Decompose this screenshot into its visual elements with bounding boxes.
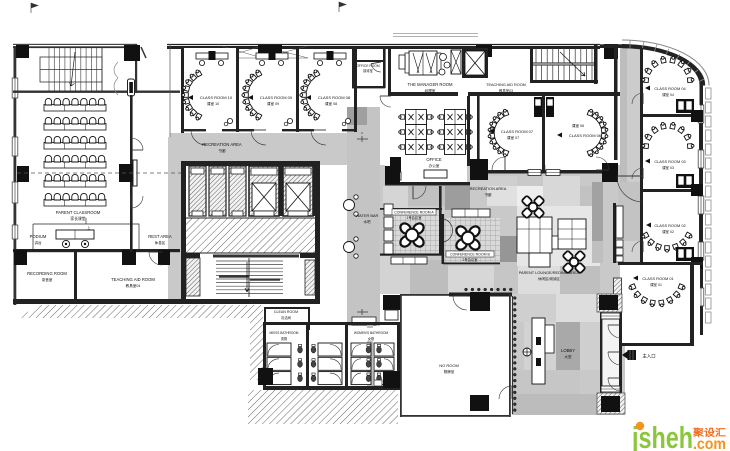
svg-text:课室 03: 课室 03	[662, 165, 674, 170]
svg-text:课室 08: 课室 08	[325, 101, 337, 106]
svg-text:清洁间: 清洁间	[281, 315, 291, 320]
svg-text:CLASS ROOM 02: CLASS ROOM 02	[654, 223, 685, 228]
svg-text:休息区: 休息区	[155, 240, 166, 245]
svg-text:1号会议室: 1号会议室	[406, 215, 422, 220]
svg-text:大堂: 大堂	[564, 354, 572, 359]
svg-text:女厕: 女厕	[368, 336, 374, 341]
svg-text:THE MANAGER ROOM: THE MANAGER ROOM	[408, 82, 453, 87]
svg-text:CLASS ROOM 07: CLASS ROOM 07	[501, 129, 534, 134]
svg-text:RECORDING ROOM: RECORDING ROOM	[27, 271, 67, 276]
svg-text:TEACHING AID ROOM: TEACHING AID ROOM	[111, 277, 155, 282]
svg-text:聚设汇: 聚设汇	[692, 427, 727, 439]
svg-text:PODIUM: PODIUM	[30, 234, 47, 239]
svg-text:CLASS ROOM 01: CLASS ROOM 01	[642, 276, 673, 281]
svg-text:WOMEN'S BATHROOM: WOMEN'S BATHROOM	[354, 331, 389, 335]
svg-text:课室 07: 课室 07	[507, 135, 519, 140]
svg-text:TEACHING AID ROOM: TEACHING AID ROOM	[486, 83, 526, 87]
svg-text:休闲区/阅读区: 休闲区/阅读区	[538, 276, 560, 281]
svg-text:教具室04: 教具室04	[126, 283, 141, 288]
svg-text:CLASS ROOM 09: CLASS ROOM 09	[260, 95, 293, 100]
svg-text:课室 10: 课室 10	[207, 101, 219, 106]
svg-text:书廊: 书廊	[218, 148, 226, 153]
svg-text:书廊: 书廊	[485, 192, 493, 197]
svg-text:LOBBY: LOBBY	[561, 348, 575, 353]
svg-text:录音室: 录音室	[42, 277, 53, 282]
svg-text:CONFERENCE ROOM A: CONFERENCE ROOM A	[394, 211, 434, 215]
svg-text:办公室: 办公室	[429, 163, 440, 168]
svg-text:课室 04: 课室 04	[662, 92, 674, 97]
svg-text:CLASS ROOM 08: CLASS ROOM 08	[318, 95, 351, 100]
svg-text:棋牌室: 棋牌室	[444, 369, 455, 374]
svg-text:家长课堂: 家长课堂	[70, 216, 85, 221]
svg-text:接待室: 接待室	[363, 68, 373, 73]
svg-text:RECREATION AREA: RECREATION AREA	[470, 186, 507, 191]
svg-text:男厕: 男厕	[281, 336, 287, 341]
svg-text:CLASS ROOM 06: CLASS ROOM 06	[569, 133, 602, 138]
svg-text:CLASS ROOM 03: CLASS ROOM 03	[654, 159, 685, 164]
svg-text:水吧: 水吧	[364, 219, 372, 224]
svg-text:CLASS ROOM 04: CLASS ROOM 04	[654, 86, 686, 91]
svg-text:讲台: 讲台	[34, 240, 42, 245]
svg-text:CONFERENCE ROOM B: CONFERENCE ROOM B	[450, 253, 490, 257]
svg-text:REST AREA: REST AREA	[148, 234, 172, 239]
svg-text:PARENT CLASSROOM: PARENT CLASSROOM	[56, 210, 101, 215]
svg-text:CLASS ROOM 10: CLASS ROOM 10	[200, 95, 233, 100]
svg-text:课室 02: 课室 02	[662, 229, 674, 234]
svg-text:OFFICE: OFFICE	[426, 157, 442, 162]
svg-text:WATER BAR: WATER BAR	[356, 213, 379, 218]
svg-text:CLEAN ROOM: CLEAN ROOM	[274, 310, 298, 314]
svg-text:NO ROOM: NO ROOM	[439, 363, 459, 368]
svg-text:课室 01: 课室 01	[650, 282, 662, 287]
svg-text:OFFICE ROOM: OFFICE ROOM	[356, 64, 380, 68]
svg-text:MEN'S BATHROOM: MEN'S BATHROOM	[270, 331, 299, 335]
svg-text:PARENT LOUNGE/REDING AREA: PARENT LOUNGE/REDING AREA	[519, 270, 580, 275]
svg-text:RECREATION AREA: RECREATION AREA	[202, 142, 242, 147]
svg-text:2号会议室: 2号会议室	[462, 257, 478, 262]
svg-text:课室 06: 课室 06	[572, 123, 584, 128]
svg-text:主入口: 主入口	[642, 353, 655, 359]
svg-text:课室 09: 课室 09	[267, 101, 279, 106]
